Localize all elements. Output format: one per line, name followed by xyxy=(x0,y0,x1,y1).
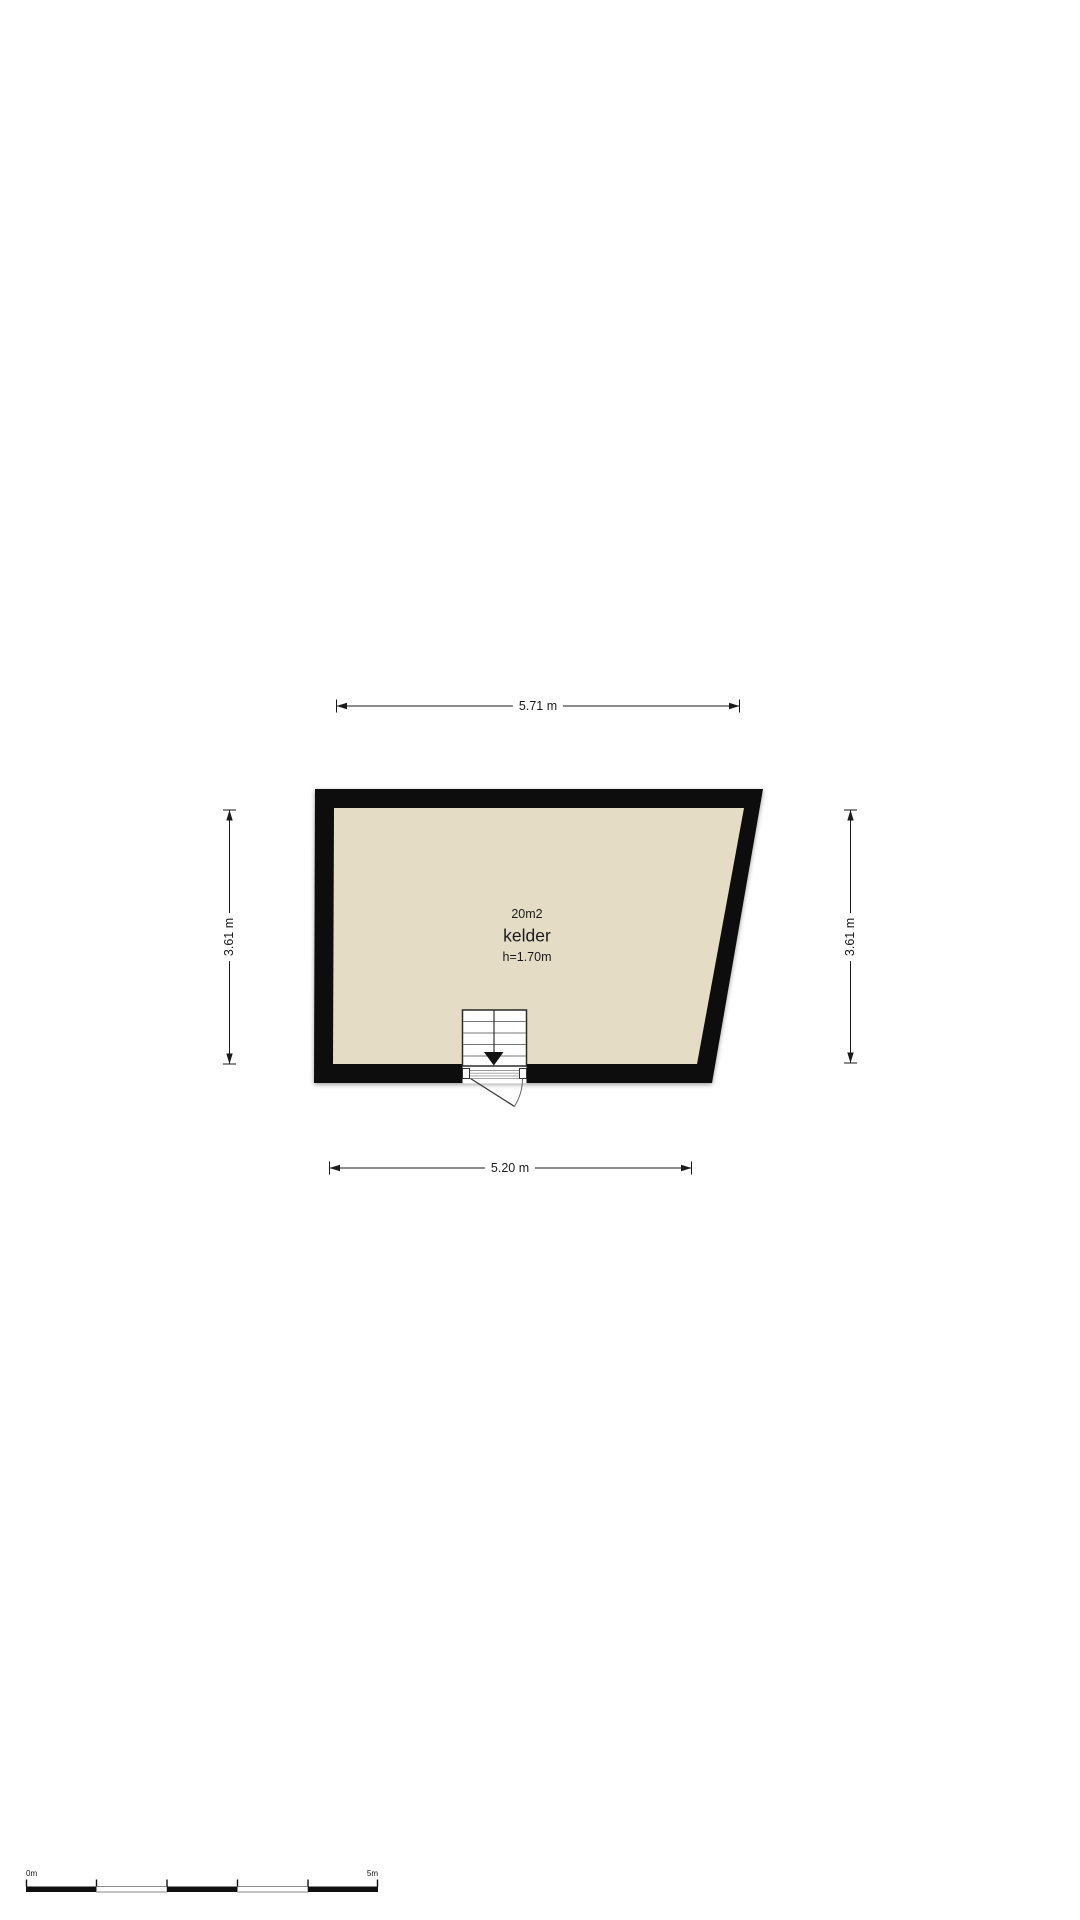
room-ceiling-height-label: h=1.70m xyxy=(503,950,552,964)
floorplan-page: 5.71 m 5.20 m 3.61 m 3.61 m 20m2 kelder … xyxy=(0,0,1080,1920)
scale-segment-white xyxy=(238,1887,309,1893)
scale-end-label: 5m xyxy=(367,1870,378,1878)
dimension-label-bottom: 5.20 m xyxy=(485,1161,535,1175)
door-opening xyxy=(463,1064,527,1084)
scale-bar xyxy=(26,1880,378,1893)
dimension-label-top: 5.71 m xyxy=(513,699,563,713)
door-jamb-right xyxy=(520,1069,527,1079)
scale-start-label: 0m xyxy=(26,1870,37,1878)
room-name-label: kelder xyxy=(503,926,551,947)
scale-segment-white xyxy=(97,1887,168,1893)
scale-ticks xyxy=(27,1880,378,1887)
dimension-label-left: 3.61 m xyxy=(222,913,236,961)
dimension-label-right: 3.61 m xyxy=(843,913,857,961)
scale-segment-black xyxy=(26,1887,97,1893)
room-area-label: 20m2 xyxy=(511,907,542,921)
scale-segment-black xyxy=(167,1887,238,1893)
door-jamb-left xyxy=(463,1069,470,1079)
door-opening-gap xyxy=(463,1064,527,1084)
scale-segment-black xyxy=(308,1887,378,1893)
stairs-icon xyxy=(463,1010,527,1066)
